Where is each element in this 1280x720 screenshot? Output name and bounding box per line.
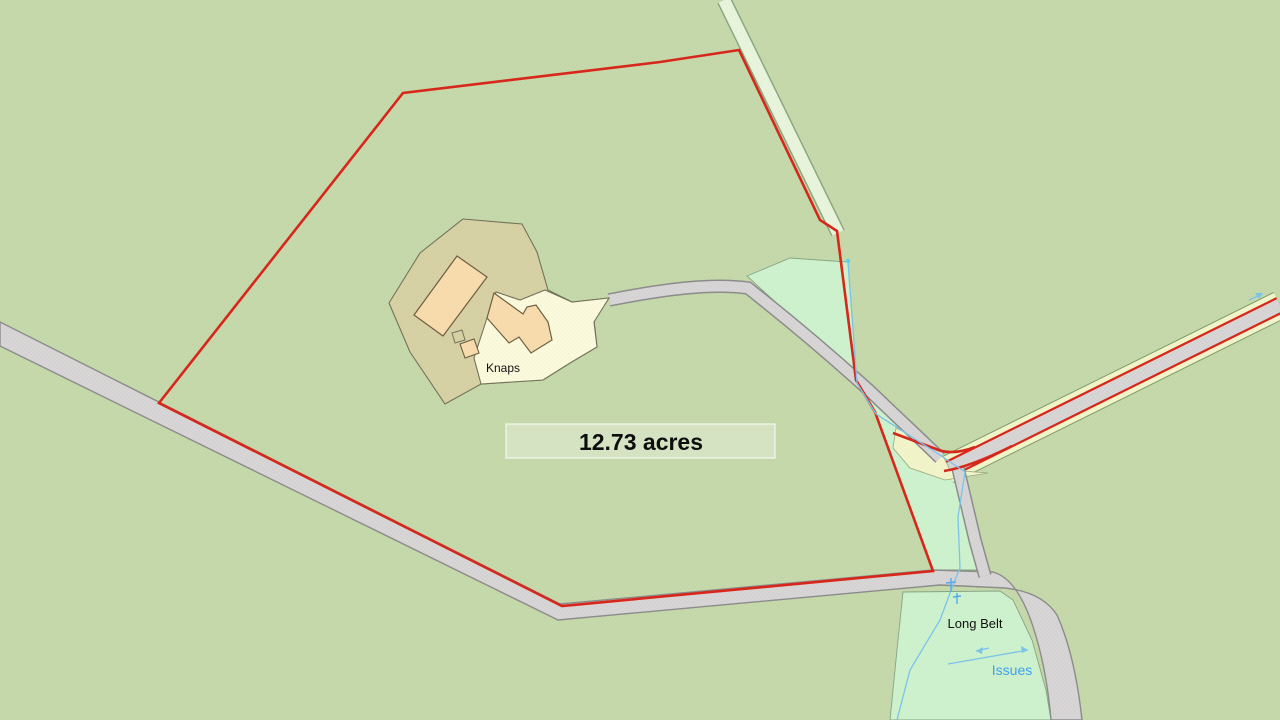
issues-label: Issues	[992, 662, 1032, 678]
property-label: Knaps	[486, 361, 520, 375]
woodland-label: Long Belt	[948, 616, 1003, 631]
map-canvas[interactable]: Knaps Long Belt Issues 12.73 acres	[0, 0, 1280, 720]
acreage-label-box: 12.73 acres	[506, 424, 775, 458]
acreage-value: 12.73 acres	[579, 429, 703, 455]
stream-source-dot	[846, 259, 850, 263]
